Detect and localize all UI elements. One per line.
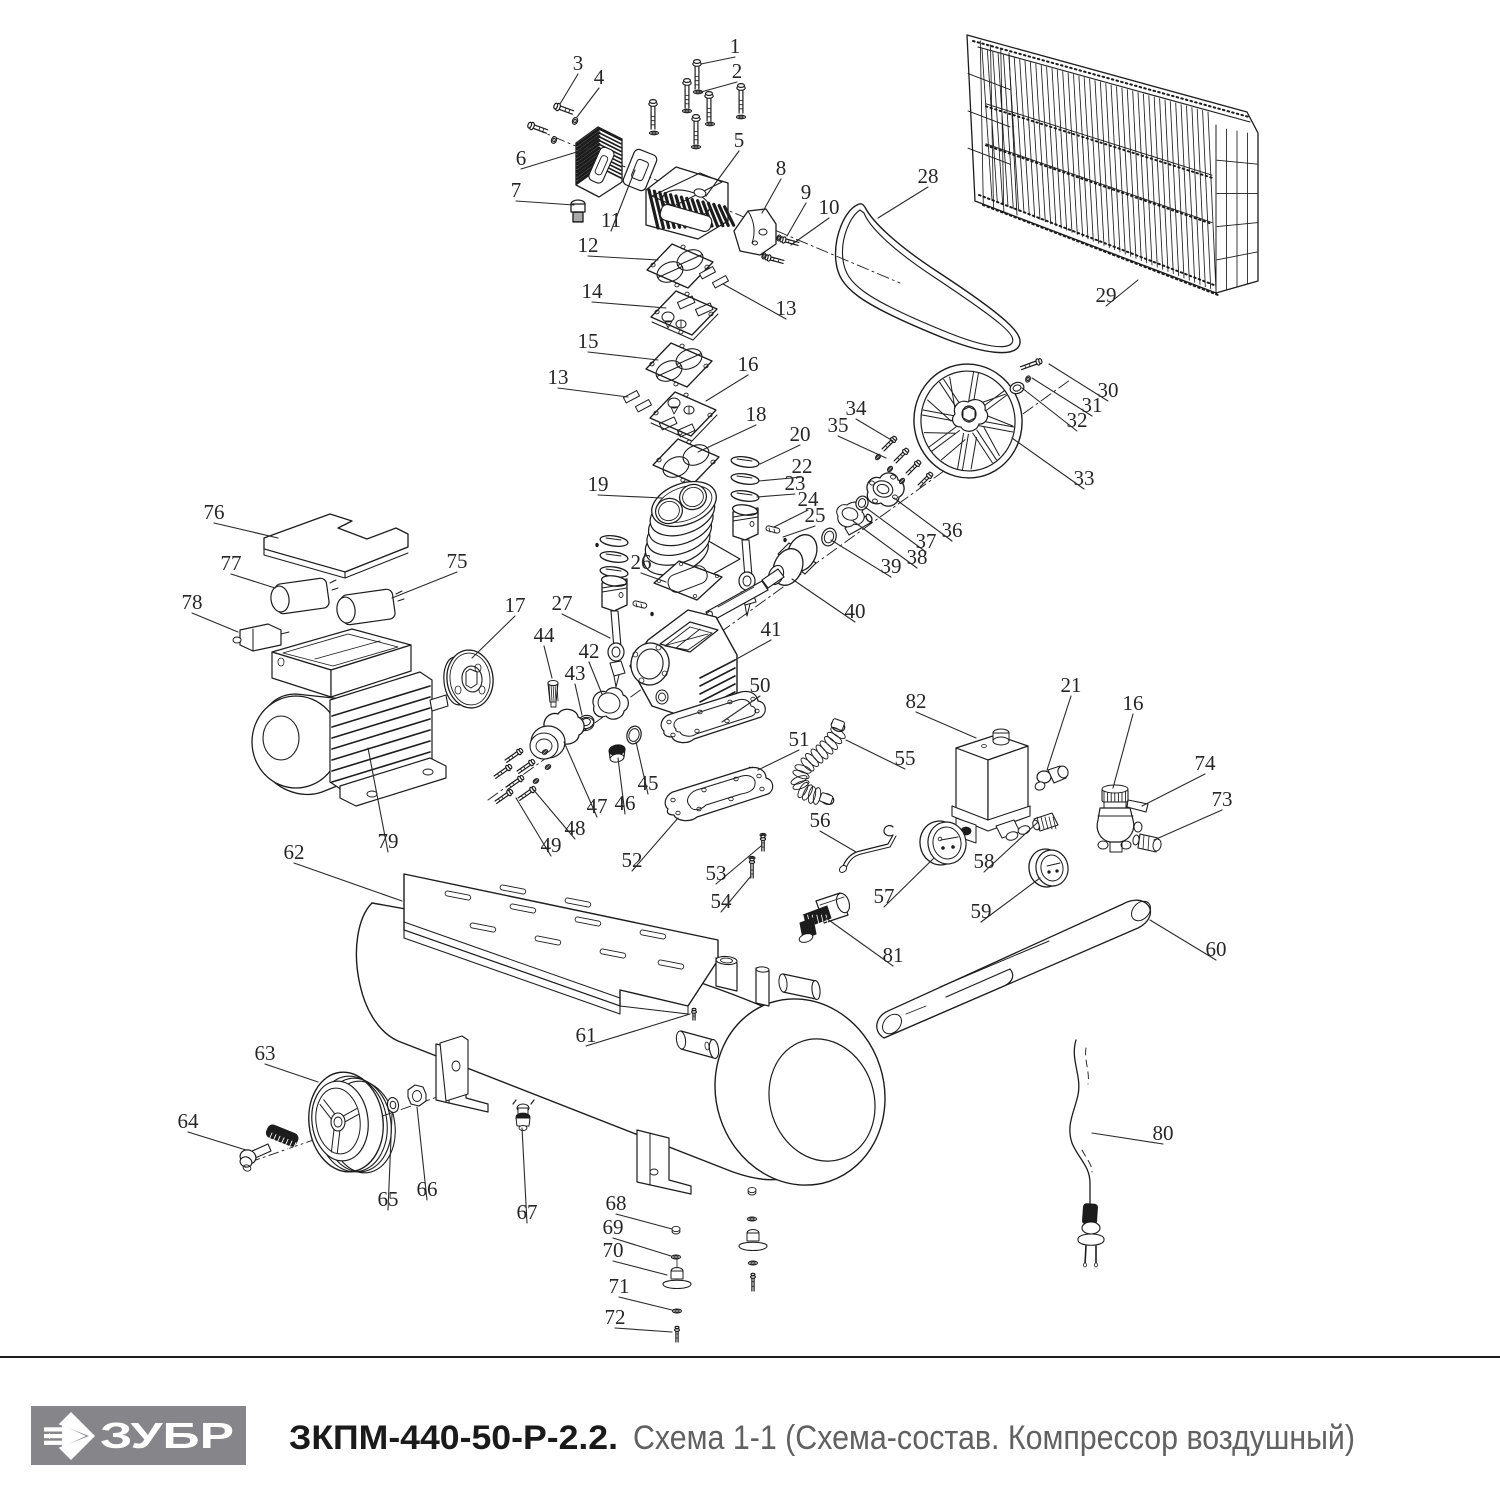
svg-text:2: 2 xyxy=(732,59,743,83)
svg-text:12: 12 xyxy=(578,233,599,257)
svg-text:5: 5 xyxy=(734,128,745,152)
svg-text:59: 59 xyxy=(971,899,992,923)
svg-text:68: 68 xyxy=(606,1191,627,1215)
svg-text:61: 61 xyxy=(576,1023,597,1047)
svg-text:4: 4 xyxy=(594,65,605,89)
svg-text:46: 46 xyxy=(615,791,636,815)
svg-text:39: 39 xyxy=(881,554,902,578)
svg-text:14: 14 xyxy=(582,279,604,303)
svg-text:33: 33 xyxy=(1074,466,1095,490)
svg-text:45: 45 xyxy=(638,771,659,795)
svg-text:60: 60 xyxy=(1206,937,1227,961)
svg-text:35: 35 xyxy=(828,413,849,437)
svg-text:36: 36 xyxy=(942,518,963,542)
svg-text:40: 40 xyxy=(845,599,866,623)
svg-text:11: 11 xyxy=(601,208,621,232)
svg-text:53: 53 xyxy=(706,861,727,885)
svg-text:54: 54 xyxy=(711,889,733,913)
svg-text:72: 72 xyxy=(605,1305,626,1329)
svg-text:32: 32 xyxy=(1067,408,1088,432)
svg-text:69: 69 xyxy=(603,1215,624,1239)
svg-text:49: 49 xyxy=(541,833,562,857)
svg-text:7: 7 xyxy=(511,178,522,202)
svg-text:15: 15 xyxy=(578,329,599,353)
svg-text:Схема 1-1 (Схема-состав. Компр: Схема 1-1 (Схема-состав. Компрессор возд… xyxy=(633,1419,1355,1457)
svg-text:34: 34 xyxy=(846,396,868,420)
svg-text:64: 64 xyxy=(178,1109,200,1133)
svg-text:16: 16 xyxy=(738,352,759,376)
svg-text:76: 76 xyxy=(204,500,225,524)
svg-text:43: 43 xyxy=(565,661,586,685)
svg-text:27: 27 xyxy=(552,591,573,615)
svg-text:ЗКПМ-440-50-Р-2.2.: ЗКПМ-440-50-Р-2.2. xyxy=(289,1419,618,1457)
svg-text:51: 51 xyxy=(789,727,810,751)
svg-text:73: 73 xyxy=(1212,787,1233,811)
svg-text:10: 10 xyxy=(819,195,840,219)
svg-text:74: 74 xyxy=(1195,751,1217,775)
svg-text:55: 55 xyxy=(895,746,916,770)
svg-text:29: 29 xyxy=(1096,283,1117,307)
svg-text:38: 38 xyxy=(907,545,928,569)
svg-text:48: 48 xyxy=(565,816,586,840)
svg-text:67: 67 xyxy=(517,1200,538,1224)
svg-text:1: 1 xyxy=(730,34,741,58)
svg-text:3: 3 xyxy=(573,51,584,75)
svg-text:25: 25 xyxy=(805,503,826,527)
svg-text:50: 50 xyxy=(750,673,771,697)
svg-text:58: 58 xyxy=(974,849,995,873)
svg-text:56: 56 xyxy=(810,808,831,832)
svg-text:ЗУБР: ЗУБР xyxy=(100,1415,234,1456)
svg-text:44: 44 xyxy=(534,623,556,647)
svg-text:75: 75 xyxy=(447,549,468,573)
svg-text:16: 16 xyxy=(1123,691,1144,715)
svg-text:79: 79 xyxy=(378,829,399,853)
svg-text:42: 42 xyxy=(579,639,600,663)
svg-text:77: 77 xyxy=(221,551,242,575)
svg-text:8: 8 xyxy=(776,156,787,180)
svg-text:13: 13 xyxy=(548,365,569,389)
svg-text:80: 80 xyxy=(1153,1121,1174,1145)
svg-text:52: 52 xyxy=(622,848,643,872)
svg-text:6: 6 xyxy=(516,146,527,170)
svg-text:57: 57 xyxy=(874,884,895,908)
svg-text:9: 9 xyxy=(801,180,812,204)
svg-text:78: 78 xyxy=(182,590,203,614)
svg-text:82: 82 xyxy=(906,689,927,713)
svg-text:20: 20 xyxy=(790,422,811,446)
svg-text:63: 63 xyxy=(255,1041,276,1065)
svg-text:62: 62 xyxy=(284,840,305,864)
svg-text:71: 71 xyxy=(609,1274,630,1298)
svg-text:26: 26 xyxy=(631,550,652,574)
svg-text:70: 70 xyxy=(603,1238,624,1262)
svg-text:66: 66 xyxy=(417,1177,438,1201)
svg-text:21: 21 xyxy=(1061,673,1082,697)
svg-text:18: 18 xyxy=(746,402,767,426)
svg-text:19: 19 xyxy=(588,472,609,496)
svg-text:41: 41 xyxy=(761,617,782,641)
svg-text:28: 28 xyxy=(918,164,939,188)
svg-text:47: 47 xyxy=(587,794,608,818)
svg-text:17: 17 xyxy=(505,593,526,617)
svg-text:65: 65 xyxy=(378,1187,399,1211)
svg-text:81: 81 xyxy=(883,943,904,967)
svg-text:13: 13 xyxy=(776,296,797,320)
